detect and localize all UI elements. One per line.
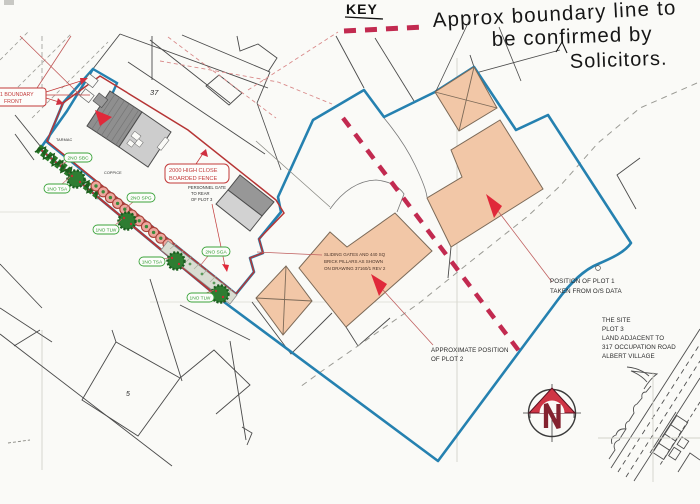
svg-text:1 BOUNDARY: 1 BOUNDARY (0, 92, 34, 98)
svg-text:317 OCCUPATION ROAD: 317 OCCUPATION ROAD (602, 344, 676, 351)
svg-text:PERSONNEL GATE: PERSONNEL GATE (188, 185, 226, 190)
svg-text:APPROXIMATE POSITION: APPROXIMATE POSITION (431, 347, 509, 354)
svg-text:OF PLOT 3: OF PLOT 3 (191, 197, 213, 202)
svg-text:37: 37 (150, 88, 159, 97)
svg-text:OF PLOT 2: OF PLOT 2 (431, 356, 464, 363)
svg-text:2NO SBC: 2NO SBC (67, 156, 89, 162)
svg-text:ON DRAWING 37160/1 REV 2: ON DRAWING 37160/1 REV 2 (324, 266, 386, 271)
svg-text:2NO SPG: 2NO SPG (130, 196, 152, 202)
svg-text:ALBERT VILLAGE: ALBERT VILLAGE (602, 353, 655, 360)
svg-text:SLIDING GATES AND 440 SQ: SLIDING GATES AND 440 SQ (324, 252, 386, 257)
svg-text:1NO TSA: 1NO TSA (47, 187, 68, 193)
svg-text:TAKEN FROM O/S DATA: TAKEN FROM O/S DATA (550, 288, 622, 295)
svg-text:Solicitors.: Solicitors. (569, 48, 667, 73)
svg-text:1NO TLW: 1NO TLW (190, 296, 211, 302)
svg-text:POSITION OF PLOT 1: POSITION OF PLOT 1 (550, 278, 615, 285)
svg-text:PLOT 3: PLOT 3 (602, 326, 624, 333)
svg-text:BRICK PILLARS AS SHOWN: BRICK PILLARS AS SHOWN (324, 259, 383, 264)
svg-text:BOARDED FENCE: BOARDED FENCE (169, 176, 217, 182)
svg-text:COPPICE: COPPICE (104, 171, 122, 175)
svg-text:5: 5 (126, 391, 130, 398)
svg-text:2000 HIGH CLOSE: 2000 HIGH CLOSE (169, 168, 218, 174)
svg-text:FRONT: FRONT (4, 99, 23, 105)
svg-text:KEY: KEY (346, 1, 378, 17)
svg-text:2NO SGA: 2NO SGA (205, 250, 227, 256)
svg-text:TARMAC: TARMAC (56, 138, 73, 142)
svg-text:TO REAR: TO REAR (191, 191, 210, 196)
svg-text:THE SITE: THE SITE (602, 317, 631, 324)
svg-text:1NO TLW: 1NO TLW (96, 228, 117, 234)
svg-text:LAND ADJACENT TO: LAND ADJACENT TO (602, 335, 664, 342)
svg-text:1NO TSA: 1NO TSA (142, 260, 163, 266)
